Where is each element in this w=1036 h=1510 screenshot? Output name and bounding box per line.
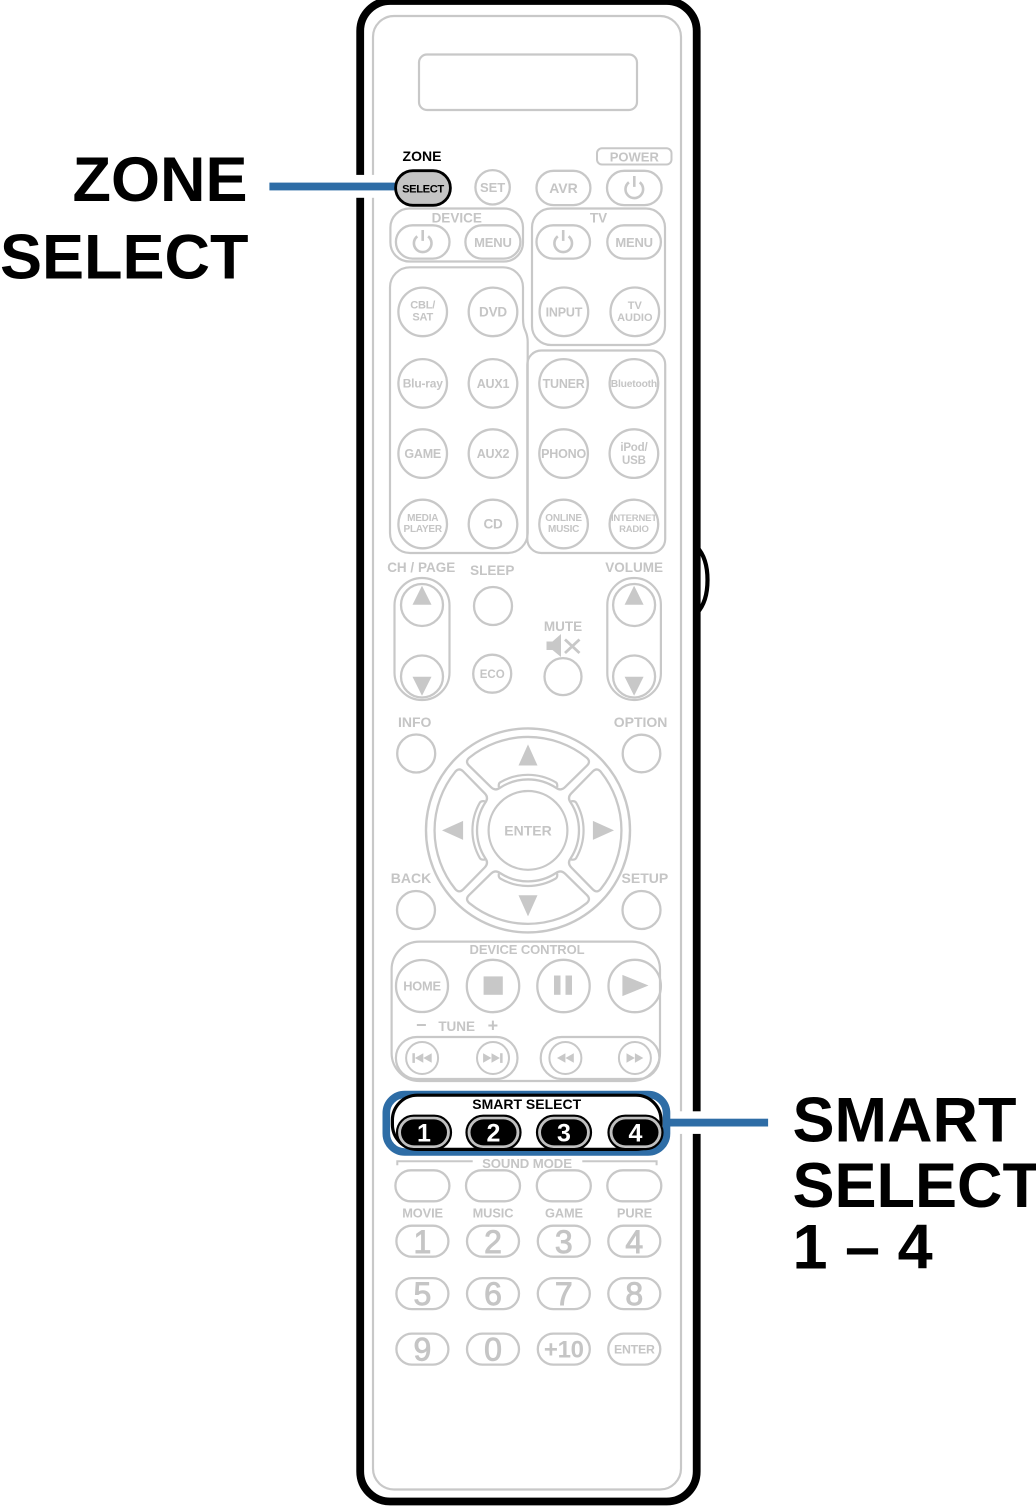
svg-text:+10: +10 [544, 1337, 584, 1364]
svg-text:2: 2 [487, 1120, 501, 1148]
svg-text:PHONO: PHONO [541, 447, 586, 461]
svg-text:9: 9 [414, 1332, 432, 1368]
svg-text:VOLUME: VOLUME [605, 560, 663, 575]
svg-text:GAME: GAME [545, 1206, 584, 1221]
svg-text:SLEEP: SLEEP [470, 563, 514, 578]
svg-text:CH / PAGE: CH / PAGE [387, 560, 455, 575]
svg-text:RADIO: RADIO [619, 524, 649, 535]
svg-text:7: 7 [555, 1276, 573, 1312]
svg-text:AUX2: AUX2 [477, 447, 510, 461]
svg-text:AUDIO: AUDIO [617, 312, 653, 324]
svg-text:MUSIC: MUSIC [473, 1206, 514, 1221]
svg-text:8: 8 [625, 1276, 643, 1312]
svg-text:2: 2 [484, 1224, 502, 1260]
svg-text:TV: TV [628, 300, 643, 312]
svg-text:0: 0 [484, 1332, 502, 1368]
svg-text:INTERNET: INTERNET [611, 513, 657, 524]
svg-text:ONLINE: ONLINE [545, 513, 582, 524]
svg-text:ENTER: ENTER [614, 1343, 655, 1357]
svg-text:TUNE: TUNE [438, 1019, 475, 1034]
svg-text:MUTE: MUTE [544, 619, 582, 634]
svg-text:HOME: HOME [403, 979, 441, 994]
svg-text:MEDIA: MEDIA [407, 513, 438, 524]
svg-text:POWER: POWER [610, 149, 660, 164]
svg-text:SMART: SMART [793, 1085, 1017, 1155]
svg-text:1: 1 [417, 1120, 431, 1148]
svg-text:INFO: INFO [398, 714, 432, 730]
svg-text:TV: TV [590, 211, 607, 226]
svg-text:Bluetooth: Bluetooth [611, 379, 657, 390]
svg-text:1: 1 [414, 1224, 432, 1260]
svg-text:Blu-ray: Blu-ray [403, 377, 443, 391]
svg-text:SAT: SAT [412, 311, 433, 323]
svg-text:AUX1: AUX1 [477, 377, 510, 391]
svg-text:USB: USB [622, 455, 646, 467]
svg-text:CD: CD [483, 517, 503, 532]
svg-text:SET: SET [480, 180, 505, 195]
svg-text:ZONE: ZONE [72, 145, 247, 215]
svg-text:AVR: AVR [549, 180, 578, 196]
svg-text:ZONE: ZONE [403, 148, 442, 164]
svg-text:SELECT: SELECT [402, 183, 444, 195]
svg-text:SELECT: SELECT [0, 222, 249, 292]
svg-text:4: 4 [629, 1120, 643, 1148]
svg-text:MENU: MENU [474, 235, 511, 250]
svg-text:OPTION: OPTION [614, 714, 668, 730]
svg-text:iPod/: iPod/ [620, 442, 648, 454]
svg-text:CBL/: CBL/ [410, 299, 435, 311]
svg-text:1 – 4: 1 – 4 [793, 1212, 933, 1282]
svg-text:TUNER: TUNER [543, 377, 585, 391]
svg-text:SELECT: SELECT [793, 1151, 1036, 1221]
svg-text:4: 4 [625, 1224, 643, 1260]
svg-text:5: 5 [414, 1276, 432, 1312]
svg-text:MUSIC: MUSIC [548, 524, 579, 535]
svg-text:+: + [488, 1016, 499, 1036]
svg-text:DEVICE: DEVICE [432, 211, 482, 226]
svg-text:ENTER: ENTER [504, 822, 551, 838]
svg-text:INPUT: INPUT [546, 305, 583, 319]
svg-text:GAME: GAME [404, 447, 441, 461]
svg-text:MOVIE: MOVIE [402, 1206, 443, 1221]
svg-text:PLAYER: PLAYER [403, 524, 442, 535]
svg-text:SOUND MODE: SOUND MODE [482, 1156, 572, 1171]
svg-text:3: 3 [557, 1120, 571, 1148]
svg-text:DVD: DVD [479, 305, 507, 320]
svg-text:SETUP: SETUP [622, 870, 669, 886]
svg-text:−: − [416, 1015, 427, 1035]
svg-text:SMART SELECT: SMART SELECT [472, 1096, 581, 1112]
svg-text:6: 6 [484, 1276, 502, 1312]
svg-text:DEVICE CONTROL: DEVICE CONTROL [470, 942, 585, 957]
svg-text:PURE: PURE [617, 1206, 653, 1221]
svg-text:MENU: MENU [615, 235, 652, 250]
svg-text:3: 3 [555, 1224, 573, 1260]
svg-text:ECO: ECO [480, 669, 505, 681]
svg-text:BACK: BACK [391, 870, 431, 886]
